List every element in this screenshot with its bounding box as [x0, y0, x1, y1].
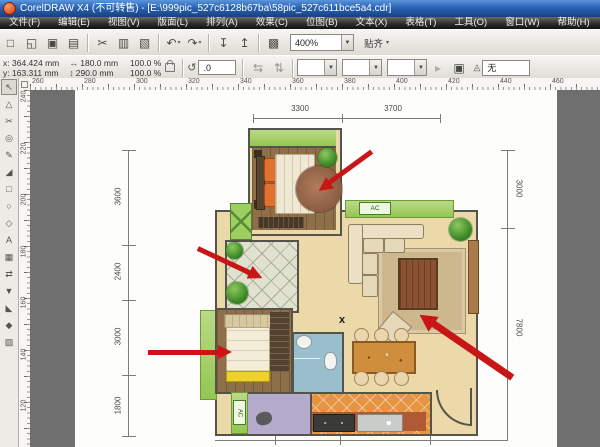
ruler-number: 160	[21, 297, 28, 309]
dim-label: 1800	[114, 389, 123, 423]
percent-label: %	[154, 58, 162, 68]
dim-tick	[501, 228, 515, 229]
ac-label: AC	[233, 400, 246, 425]
dim-tick	[430, 436, 431, 445]
zoom-level-combo[interactable]: 400% ▼	[290, 34, 354, 51]
y-position-field[interactable]: 163.311 mm	[12, 68, 59, 78]
ellipse-tool[interactable]: ○	[1, 198, 17, 214]
dim-label: 3000	[114, 320, 123, 354]
dining-chair	[394, 371, 409, 386]
window-title: CorelDRAW X4 (不可转售) - [E:\999pic_527c612…	[20, 0, 391, 17]
dim-tick	[122, 150, 136, 151]
object-position-group: x: 364.424 mm y: 163.311 mm	[3, 58, 59, 78]
menu-item[interactable]: 窗口(W)	[496, 17, 548, 29]
ruler-number: 380	[344, 78, 356, 85]
plant	[226, 242, 243, 259]
smart-fill-tool[interactable]: ◢	[1, 164, 17, 180]
outline-width-combo[interactable]: 无	[482, 60, 530, 76]
rotate-icon: ↺	[187, 61, 196, 74]
dim-tick	[342, 114, 343, 123]
menu-item[interactable]: 编辑(E)	[49, 17, 99, 29]
paste-icon[interactable]: ▧	[135, 33, 154, 52]
title-bar[interactable]: CorelDRAW X4 (不可转售) - [E:\999pic_527c612…	[0, 0, 600, 17]
width-icon: ↔	[69, 58, 78, 68]
snap-to-button[interactable]: 贴齐 ▾	[364, 36, 389, 50]
object-width-field[interactable]: 180.0 mm	[80, 58, 118, 68]
sofa-side	[348, 224, 363, 284]
freehand-tool[interactable]: ✎	[1, 147, 17, 163]
object-height-field[interactable]: 290.0 mm	[76, 68, 114, 78]
menu-item[interactable]: 版面(L)	[148, 17, 197, 29]
rectangle-tool[interactable]: □	[1, 181, 17, 197]
ruler-number: 140	[21, 348, 28, 360]
interactive-fill-tool[interactable]: ▨	[1, 334, 17, 350]
toolbox: ↖△✂◎✎◢□○◇A▦⇄▼◣◆▨	[0, 78, 19, 447]
bed2-throw	[226, 371, 270, 382]
crop-tool[interactable]: ✂	[1, 113, 17, 129]
ruler-number: 120	[21, 400, 28, 412]
height-icon: ↕	[69, 68, 74, 78]
toolbar-separator	[208, 34, 210, 52]
ruler-number: 240	[21, 91, 28, 103]
dim-label: 2400	[114, 255, 123, 289]
zoom-level-value: 400%	[291, 38, 341, 48]
rotation-group: ↺ .0	[187, 60, 236, 75]
x-label: x:	[3, 58, 10, 68]
toolbar-separator	[158, 34, 160, 52]
dim-label: 3000	[515, 172, 524, 206]
app-icon	[3, 2, 16, 15]
drawing-canvas[interactable]: 3300 3700 3600 2400 3000 1800 3000 7800	[30, 90, 600, 447]
new-document-icon[interactable]: □	[1, 33, 20, 52]
dim-label: 3700	[348, 104, 438, 113]
copy-icon[interactable]: ▥	[114, 33, 133, 52]
sofa-cushion	[384, 238, 405, 253]
plant	[226, 282, 248, 304]
balcony-bottom	[245, 392, 312, 436]
toolbar-icons: □◱▣▤✂▥▧↶▾↷▾↧↥▩	[0, 33, 284, 52]
dim-line-bottom	[215, 440, 508, 441]
ruler-number: 180	[21, 245, 28, 257]
convert-outline-icon[interactable]: ▣	[449, 58, 468, 77]
scale-v-field[interactable]: 100.0	[130, 68, 151, 78]
menu-item[interactable]: 文本(X)	[347, 17, 397, 29]
dim-tick	[122, 300, 136, 301]
coreldraw-window: CorelDRAW X4 (不可转售) - [E:\999pic_527c612…	[0, 0, 600, 447]
menu-item[interactable]: 视图(V)	[99, 17, 149, 29]
undo-icon[interactable]: ↶▾	[164, 33, 183, 52]
chevron-down-icon[interactable]: ▾	[178, 39, 181, 46]
dim-label: 7800	[515, 311, 524, 345]
menu-item[interactable]: 效果(C)	[247, 17, 297, 29]
bed2-headboard	[224, 314, 272, 328]
ruler-number: 200	[21, 194, 28, 206]
ruler-number: 220	[21, 142, 28, 154]
menu-item[interactable]: 帮助(H)	[548, 17, 598, 29]
dim-tick	[501, 150, 515, 151]
rotation-angle-field[interactable]: .0	[198, 60, 236, 75]
mirror-vertical-icon[interactable]: ⇅	[269, 58, 288, 77]
dim-tick	[340, 436, 341, 445]
ruler-number: 300	[136, 78, 148, 85]
chevron-down-icon: ▾	[386, 39, 389, 46]
plant	[318, 148, 337, 167]
menu-item[interactable]: 位图(B)	[297, 17, 347, 29]
dining-table	[352, 341, 416, 374]
wardrobe	[270, 312, 289, 372]
standard-toolbar: □◱▣▤✂▥▧↶▾↷▾↧↥▩ 400% ▼ 贴齐 ▾	[0, 29, 600, 56]
dining-chair	[374, 371, 389, 386]
dim-line-top	[253, 118, 441, 119]
outline-pen-tool[interactable]: ◣	[1, 300, 17, 316]
pick-tool[interactable]: ↖	[1, 79, 17, 95]
x-position-field[interactable]: 364.424 mm	[12, 58, 59, 68]
selection-center-marker: x	[339, 314, 345, 326]
start-arrowhead-combo[interactable]: ▼	[297, 59, 337, 76]
dim-tick	[122, 436, 136, 437]
open-icon[interactable]: ◱	[22, 33, 41, 52]
dim-tick	[440, 114, 441, 123]
sofa-cushion	[362, 253, 378, 275]
ruler-number: 440	[500, 78, 512, 85]
import-icon[interactable]: ↧	[214, 33, 233, 52]
rotation-angle-value: .0	[199, 63, 235, 73]
dim-tick	[122, 245, 136, 246]
ruler-number: 360	[292, 78, 304, 85]
percent-label: %	[154, 68, 162, 78]
toolbar-separator	[87, 34, 89, 52]
toolbar-separator	[258, 34, 260, 52]
polygon-tool[interactable]: ◇	[1, 215, 17, 231]
sink	[296, 335, 312, 349]
snap-to-label: 贴齐	[364, 36, 383, 50]
dining-chair	[354, 371, 369, 386]
dim-tick	[122, 375, 136, 376]
balcony-top	[250, 130, 336, 148]
sofa-cushion	[362, 275, 378, 297]
interactive-blend-tool[interactable]: ⇄	[1, 266, 17, 282]
menu-item[interactable]: 文件(F)	[0, 17, 49, 29]
fill-tool[interactable]: ◆	[1, 317, 17, 333]
ruler-number: 400	[396, 78, 408, 85]
floor-mat	[258, 217, 304, 228]
plant	[449, 218, 472, 241]
object-size-group: ↔180.0 mm ↕290.0 mm	[69, 58, 118, 78]
sofa-cushion	[363, 238, 384, 253]
kitchen-sink	[357, 414, 403, 432]
eyedropper-tool[interactable]: ▼	[1, 283, 17, 299]
table-tool[interactable]: ▦	[1, 249, 17, 265]
export-icon[interactable]: ↥	[235, 33, 254, 52]
text-tool[interactable]: A	[1, 232, 17, 248]
ruler-number: 460	[552, 78, 564, 85]
outline-width-value: 无	[483, 61, 529, 74]
ruler-number: 280	[84, 78, 96, 85]
menu-item[interactable]: 表格(T)	[396, 17, 445, 29]
dim-tick	[275, 436, 276, 445]
entry-door-leaf	[470, 388, 472, 426]
lock-ratio-icon[interactable]	[165, 63, 175, 72]
menubar: 文件(F)编辑(E)视图(V)版面(L)排列(A)效果(C)位图(B)文本(X)…	[0, 17, 600, 29]
y-label: y:	[3, 68, 10, 78]
dim-label: 3300	[260, 104, 340, 113]
dim-label: 3600	[114, 180, 123, 214]
coffee-table	[398, 258, 438, 310]
print-icon[interactable]: ▤	[64, 33, 83, 52]
toilet	[324, 352, 337, 370]
outline-width-group: ◬ 无	[473, 60, 530, 76]
ruler-number: 320	[188, 78, 200, 85]
dim-line-right	[507, 150, 508, 440]
disabled-icon: ▸	[428, 58, 447, 77]
tv-bench	[468, 240, 479, 314]
cut-icon[interactable]: ✂	[93, 33, 112, 52]
mirror-horizontal-icon[interactable]: ⇆	[248, 58, 267, 77]
shower-partition	[294, 358, 320, 359]
scale-h-field[interactable]: 100.0	[130, 58, 151, 68]
stove	[313, 414, 355, 432]
outline-pen-icon: ◬	[473, 62, 480, 73]
scale-group: 100.0 % 100.0 %	[130, 58, 161, 78]
app-launcher-icon[interactable]: ▩	[264, 33, 283, 52]
washing-machine	[230, 203, 252, 240]
ruler-number: 340	[240, 78, 252, 85]
property-bar: x: 364.424 mm y: 163.311 mm ↔180.0 mm ↕2…	[0, 55, 600, 80]
end-arrowhead-combo[interactable]: ▼	[387, 59, 427, 76]
line-style-combo[interactable]: ▼	[342, 59, 382, 76]
menu-item[interactable]: 工具(O)	[445, 17, 496, 29]
save-icon[interactable]: ▣	[43, 33, 62, 52]
chevron-down-icon[interactable]: ▾	[199, 39, 202, 46]
zoom-tool[interactable]: ◎	[1, 130, 17, 146]
dim-line-left	[128, 150, 129, 437]
redo-icon[interactable]: ↷▾	[185, 33, 204, 52]
menu-item[interactable]: 排列(A)	[197, 17, 247, 29]
ruler-number: 420	[448, 78, 460, 85]
shape-tool[interactable]: △	[1, 96, 17, 112]
dim-tick	[253, 114, 254, 123]
ac-label: AC	[359, 202, 391, 215]
ruler-number: 260	[32, 78, 44, 85]
chevron-down-icon[interactable]: ▼	[341, 35, 353, 50]
